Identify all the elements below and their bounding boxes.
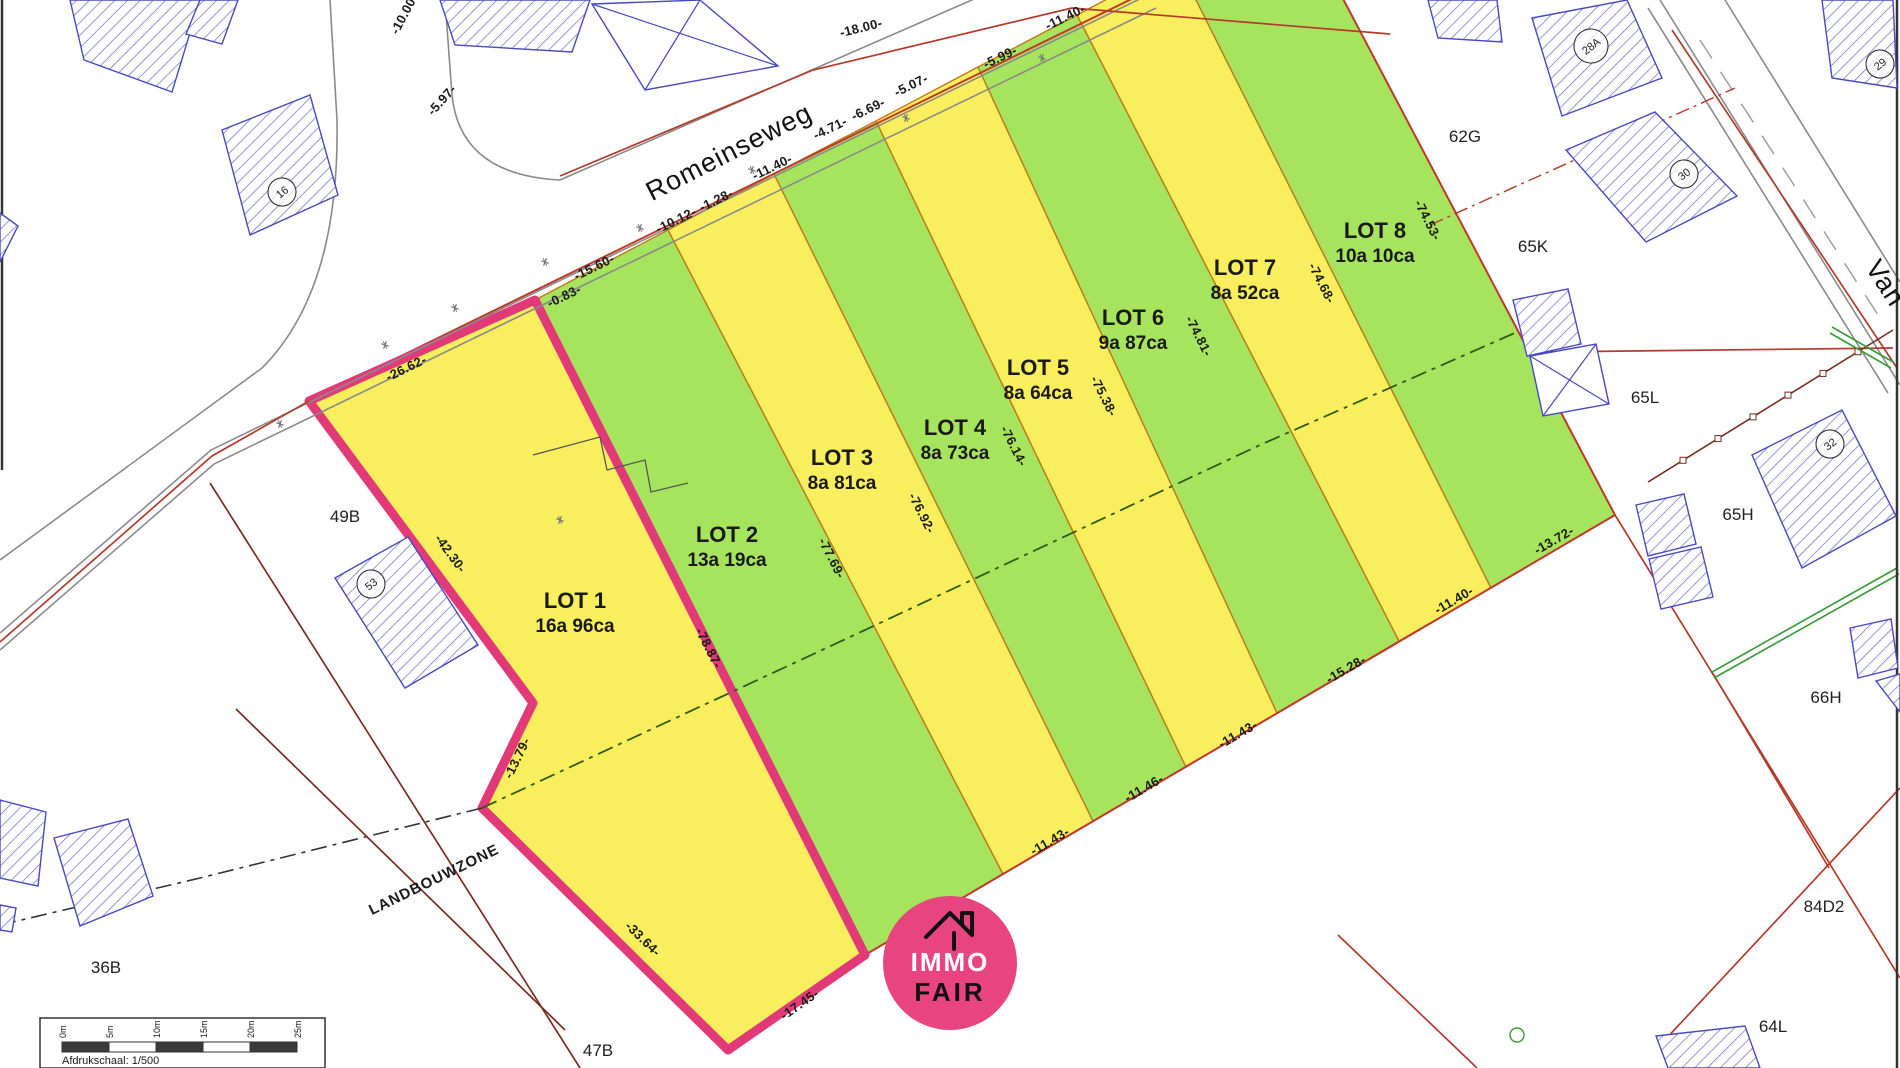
svg-text:LOT 6: LOT 6 (1102, 305, 1164, 330)
boundary-tick (1750, 414, 1756, 420)
parcel-label: 62G (1449, 127, 1481, 146)
svg-text:LOT 8: LOT 8 (1344, 218, 1406, 243)
immofair-logo: IMMOFAIR (883, 896, 1017, 1030)
svg-text:8a 81ca: 8a 81ca (808, 473, 877, 494)
svg-text:LOT 1: LOT 1 (544, 588, 606, 613)
parcel-boundary-red (0, 401, 309, 642)
scale-bar-segment (156, 1042, 203, 1052)
building-hatched (1649, 547, 1713, 609)
scale-tick-label: 15m (199, 1020, 209, 1038)
measurement-label: -18.00- (838, 15, 884, 40)
building-hatched (1876, 674, 1900, 712)
svg-text:8a 73ca: 8a 73ca (921, 443, 990, 464)
svg-text:LOT 2: LOT 2 (696, 522, 758, 547)
building-hatched (1850, 619, 1898, 678)
scale-bar-segment (62, 1042, 109, 1052)
scale-tick-label: 5m (105, 1025, 115, 1038)
building-hatched (1566, 112, 1737, 242)
scale-bar-segment (250, 1042, 297, 1052)
building-hatched (0, 905, 16, 932)
parcel-label: 65K (1518, 237, 1549, 256)
scale-tick-label: 10m (152, 1020, 162, 1038)
road-marker-icon (635, 223, 645, 233)
svg-text:LOT 4: LOT 4 (924, 415, 987, 440)
scale-caption: Afdrukschaal: 1/500 (62, 1055, 159, 1067)
svg-text:LOT 7: LOT 7 (1214, 255, 1276, 280)
parcel-label: 49B (330, 507, 360, 526)
lot-label-lot-8: LOT 810a 10ca (1335, 218, 1415, 267)
building-hatched (54, 819, 153, 926)
measurement-label: -5.97- (424, 82, 459, 119)
parcel-label: 84D2 (1804, 897, 1845, 916)
road-curb-line (0, 368, 262, 560)
road-marker-icon (540, 257, 550, 267)
road-marker-icon (450, 303, 460, 313)
lot-label-lot-4: LOT 48a 73ca (921, 415, 990, 464)
parcel-label: 47B (583, 1041, 613, 1060)
parcel-label: 64L (1759, 1017, 1787, 1036)
landbouwzone-label: LANDBOUWZONE (366, 841, 502, 919)
lot-label-lot-7: LOT 78a 52ca (1211, 255, 1280, 304)
building-hatched (1636, 494, 1696, 556)
lot-label-lot-5: LOT 58a 64ca (1004, 355, 1073, 404)
green-marker-circle (1510, 1028, 1524, 1042)
svg-text:16a 96ca: 16a 96ca (535, 616, 615, 637)
parcel-boundary-red (1338, 935, 1477, 1068)
building-hatched (0, 213, 18, 262)
lot-label-lot-2: LOT 213a 19ca (687, 522, 767, 571)
lot-label-lot-1: LOT 116a 96ca (535, 588, 615, 637)
svg-text:8a 64ca: 8a 64ca (1004, 383, 1073, 404)
logo-text-immo: IMMO (911, 947, 990, 977)
lots-layer (309, 0, 1615, 1050)
measurement-label: -10.00- (387, 0, 421, 37)
parcel-label: 65L (1631, 388, 1659, 407)
parcel-label: 65H (1722, 505, 1753, 524)
street-name-van: Van (1860, 254, 1900, 311)
svg-text:LOT 5: LOT 5 (1007, 355, 1069, 380)
boundary-tick (1715, 436, 1721, 442)
green-boundary-line (1832, 327, 1893, 362)
lot-label-lot-6: LOT 69a 87ca (1099, 305, 1168, 354)
building-hatched (1428, 0, 1502, 42)
parcel-label: 36B (91, 958, 121, 977)
building-hatched (222, 95, 338, 235)
road-marker-icon (380, 340, 390, 350)
scale-bar: 0m5m10m15m20m25mAfdrukschaal: 1/500 (40, 1018, 325, 1068)
cadastral-plan-page: 165328A302932LOT 116a 96caLOT 213a 19caL… (0, 0, 1900, 1068)
building-crossed (1530, 344, 1609, 416)
scale-tick-label: 0m (58, 1025, 68, 1038)
boundary-tick (1680, 457, 1686, 463)
svg-text:13a 19ca: 13a 19ca (687, 550, 767, 571)
boundary-tick (1820, 370, 1826, 376)
building-hatched (440, 0, 590, 52)
scale-bar-segment (109, 1042, 156, 1052)
svg-text:10a 10ca: 10a 10ca (1335, 246, 1415, 267)
logo-text-fair: FAIR (914, 977, 985, 1007)
building-hatched (0, 800, 46, 886)
cadastral-map: 165328A302932LOT 116a 96caLOT 213a 19caL… (0, 0, 1900, 1068)
boundary-tick (1785, 392, 1791, 398)
parcel-label: 66H (1810, 688, 1841, 707)
svg-text:8a 52ca: 8a 52ca (1211, 283, 1280, 304)
svg-text:LOT 3: LOT 3 (811, 445, 873, 470)
building-crossed (592, 0, 778, 90)
svg-text:9a 87ca: 9a 87ca (1099, 333, 1168, 354)
parcel-boundary-red (1663, 788, 1900, 1042)
scale-tick-label: 20m (246, 1020, 256, 1038)
scale-tick-label: 25m (293, 1020, 303, 1038)
building-hatched (70, 0, 200, 92)
lot-label-lot-3: LOT 38a 81ca (808, 445, 877, 494)
scale-bar-segment (203, 1042, 250, 1052)
